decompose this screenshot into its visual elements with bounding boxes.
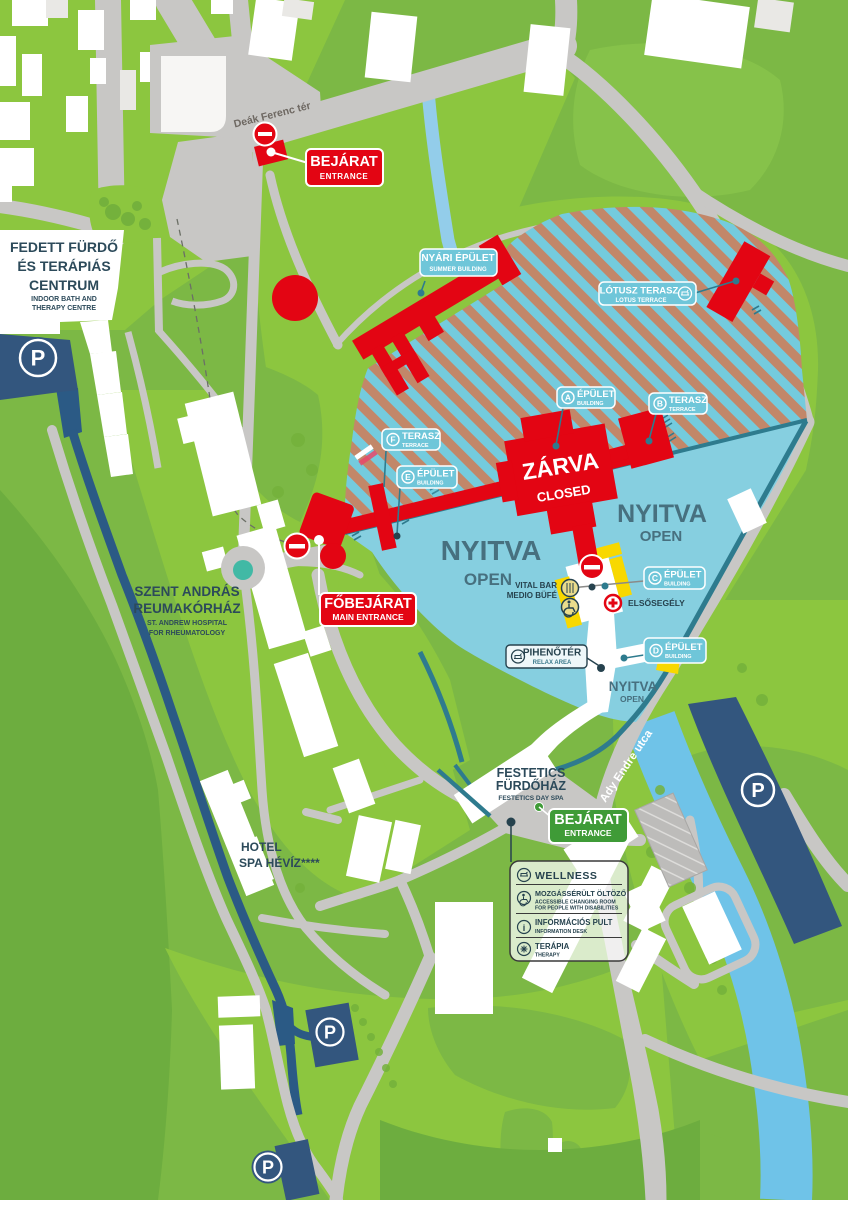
svg-text:CENTRUM: CENTRUM [29, 277, 99, 293]
svg-text:BUILDING: BUILDING [664, 582, 691, 588]
svg-text:LÓTUSZ TERASZ: LÓTUSZ TERASZ [600, 285, 679, 297]
svg-text:THERAPY: THERAPY [535, 953, 560, 959]
svg-text:P: P [31, 346, 46, 371]
svg-text:ÉS TERÁPIÁS: ÉS TERÁPIÁS [17, 258, 110, 274]
svg-text:FOR PEOPLE WITH DISABILITIES: FOR PEOPLE WITH DISABILITIES [535, 906, 619, 912]
svg-text:INFORMÁCIÓS PULT: INFORMÁCIÓS PULT [535, 918, 613, 927]
svg-text:B: B [657, 399, 663, 409]
svg-text:SUMMER BUILDING: SUMMER BUILDING [429, 267, 487, 273]
svg-text:INDOOR BATH AND: INDOOR BATH AND [31, 296, 97, 303]
svg-text:ENTRANCE: ENTRANCE [320, 172, 369, 181]
svg-text:FESTETICS DAY SPA: FESTETICS DAY SPA [498, 795, 564, 802]
svg-text:FEDETT FÜRDŐ: FEDETT FÜRDŐ [10, 238, 118, 255]
svg-text:OPEN: OPEN [464, 570, 512, 589]
svg-text:ÉPÜLET: ÉPÜLET [665, 642, 703, 653]
svg-text:NYITVA: NYITVA [609, 679, 658, 694]
svg-text:P: P [324, 1023, 336, 1043]
svg-text:TERRACE: TERRACE [402, 443, 429, 449]
svg-text:NYITVA: NYITVA [441, 535, 542, 566]
svg-text:D: D [653, 646, 659, 656]
svg-text:TERASZ: TERASZ [669, 395, 707, 406]
svg-text:BUILDING: BUILDING [577, 401, 604, 407]
svg-text:INFORMATION DESK: INFORMATION DESK [535, 929, 587, 935]
svg-text:BUILDING: BUILDING [665, 654, 692, 660]
svg-text:FÜRDŐHÁZ: FÜRDŐHÁZ [496, 778, 566, 793]
svg-text:A: A [565, 393, 571, 403]
svg-text:LOTUS TERRACE: LOTUS TERRACE [616, 298, 667, 304]
svg-text:MEDIO BÜFÉ: MEDIO BÜFÉ [507, 591, 558, 600]
svg-text:ÉPÜLET: ÉPÜLET [417, 469, 455, 480]
svg-text:C: C [652, 573, 658, 583]
svg-text:HOTEL: HOTEL [241, 840, 282, 854]
svg-text:TERASZ: TERASZ [402, 431, 440, 442]
svg-text:RELAX AREA: RELAX AREA [533, 660, 572, 666]
svg-text:i: i [523, 923, 526, 933]
svg-text:NYITVA: NYITVA [617, 500, 707, 528]
svg-text:TERRACE: TERRACE [669, 407, 696, 413]
svg-text:ÉPÜLET: ÉPÜLET [664, 570, 702, 581]
svg-text:BEJÁRAT: BEJÁRAT [554, 811, 622, 828]
svg-text:BEJÁRAT: BEJÁRAT [310, 153, 378, 170]
svg-text:FESTETICS: FESTETICS [497, 766, 566, 780]
svg-text:P: P [262, 1158, 274, 1178]
svg-text:REUMAKÓRHÁZ: REUMAKÓRHÁZ [133, 601, 240, 616]
svg-text:ST. ANDREW HOSPITAL: ST. ANDREW HOSPITAL [147, 620, 228, 627]
svg-text:FŐBEJÁRAT: FŐBEJÁRAT [324, 594, 412, 612]
svg-text:MAIN ENTRANCE: MAIN ENTRANCE [332, 612, 404, 622]
svg-text:FOR RHEUMATOLOGY: FOR RHEUMATOLOGY [149, 630, 226, 637]
svg-text:ENTRANCE: ENTRANCE [564, 828, 612, 838]
svg-text:MOZGÁSSÉRÜLT ÖLTÖZŐ: MOZGÁSSÉRÜLT ÖLTÖZŐ [535, 889, 627, 898]
svg-text:ELSŐSEGÉLY: ELSŐSEGÉLY [628, 597, 685, 608]
svg-text:OPEN: OPEN [620, 694, 644, 704]
svg-text:E: E [405, 472, 411, 482]
svg-text:SZENT ANDRÁS: SZENT ANDRÁS [134, 584, 239, 599]
svg-text:F: F [390, 435, 395, 445]
svg-text:THERAPY CENTRE: THERAPY CENTRE [32, 305, 96, 312]
svg-text:WELLNESS: WELLNESS [535, 870, 597, 882]
svg-text:VITAL BAR: VITAL BAR [515, 581, 557, 590]
svg-text:P: P [751, 780, 764, 802]
svg-text:PIHENŐTÉR: PIHENŐTÉR [523, 646, 582, 659]
svg-text:BUILDING: BUILDING [417, 481, 444, 487]
svg-text:NYÁRI ÉPÜLET: NYÁRI ÉPÜLET [421, 251, 494, 264]
svg-text:SPA HÉVÍZ****: SPA HÉVÍZ**** [239, 855, 320, 870]
svg-text:OPEN: OPEN [640, 528, 683, 545]
svg-text:TERÁPIA: TERÁPIA [535, 942, 570, 951]
svg-text:ÉPÜLET: ÉPÜLET [577, 389, 615, 400]
